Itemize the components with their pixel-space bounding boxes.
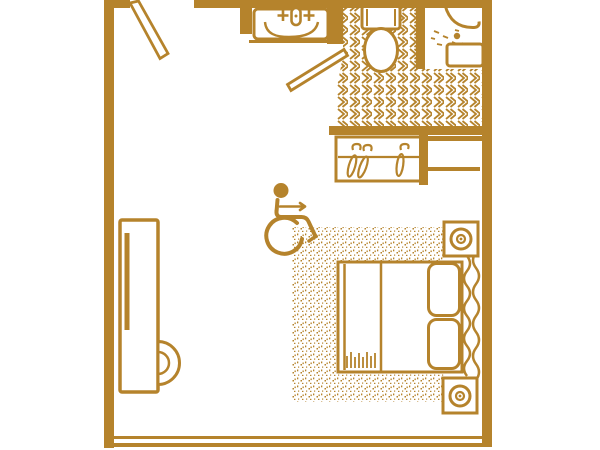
toilet-shower-partition [416,0,425,69]
pillow-top [429,264,460,316]
bathroom-bottom-wall [329,126,482,135]
bottom-wall-inner [104,436,492,439]
tv-console [120,220,158,392]
figure-head [274,183,289,198]
closet-rod-with-hangers [336,137,422,181]
double-bed [338,252,479,380]
storage-shelf [428,136,482,141]
storage-shelf [428,167,480,171]
right-wall [482,0,492,447]
floor-plan-svg [0,0,600,450]
bathroom-partition [327,0,343,44]
tv-on-console [125,233,130,330]
floor-plan-image [0,0,600,450]
side-chair [158,342,180,385]
entry-door [130,1,168,59]
pillow-bottom [429,320,460,369]
closet-side-wall [419,135,428,185]
headboard-waves [473,252,479,380]
shower-seat [447,44,483,66]
toilet [362,6,400,72]
nightstand-lamp-top [444,222,478,256]
headboard-waves [464,256,470,376]
vanity-sink [249,8,331,42]
bottom-wall-outer [104,443,492,447]
top-wall-stub [104,0,130,8]
vanity-partition [240,0,252,34]
nightstand-lamp-bottom [443,378,477,413]
left-wall [104,0,114,448]
